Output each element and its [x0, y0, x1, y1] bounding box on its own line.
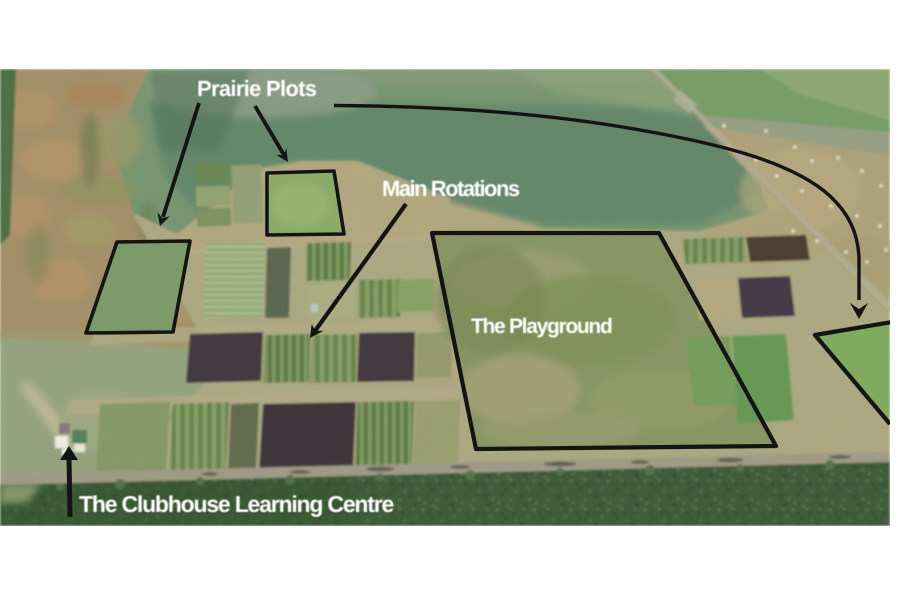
svg-text:The Playground: The Playground [471, 315, 612, 338]
svg-text:Prairie Plots: Prairie Plots [197, 76, 317, 101]
svg-text:Main Rotations: Main Rotations [382, 176, 520, 201]
svg-text:The Clubhouse Learning Centre: The Clubhouse Learning Centre [79, 491, 393, 517]
